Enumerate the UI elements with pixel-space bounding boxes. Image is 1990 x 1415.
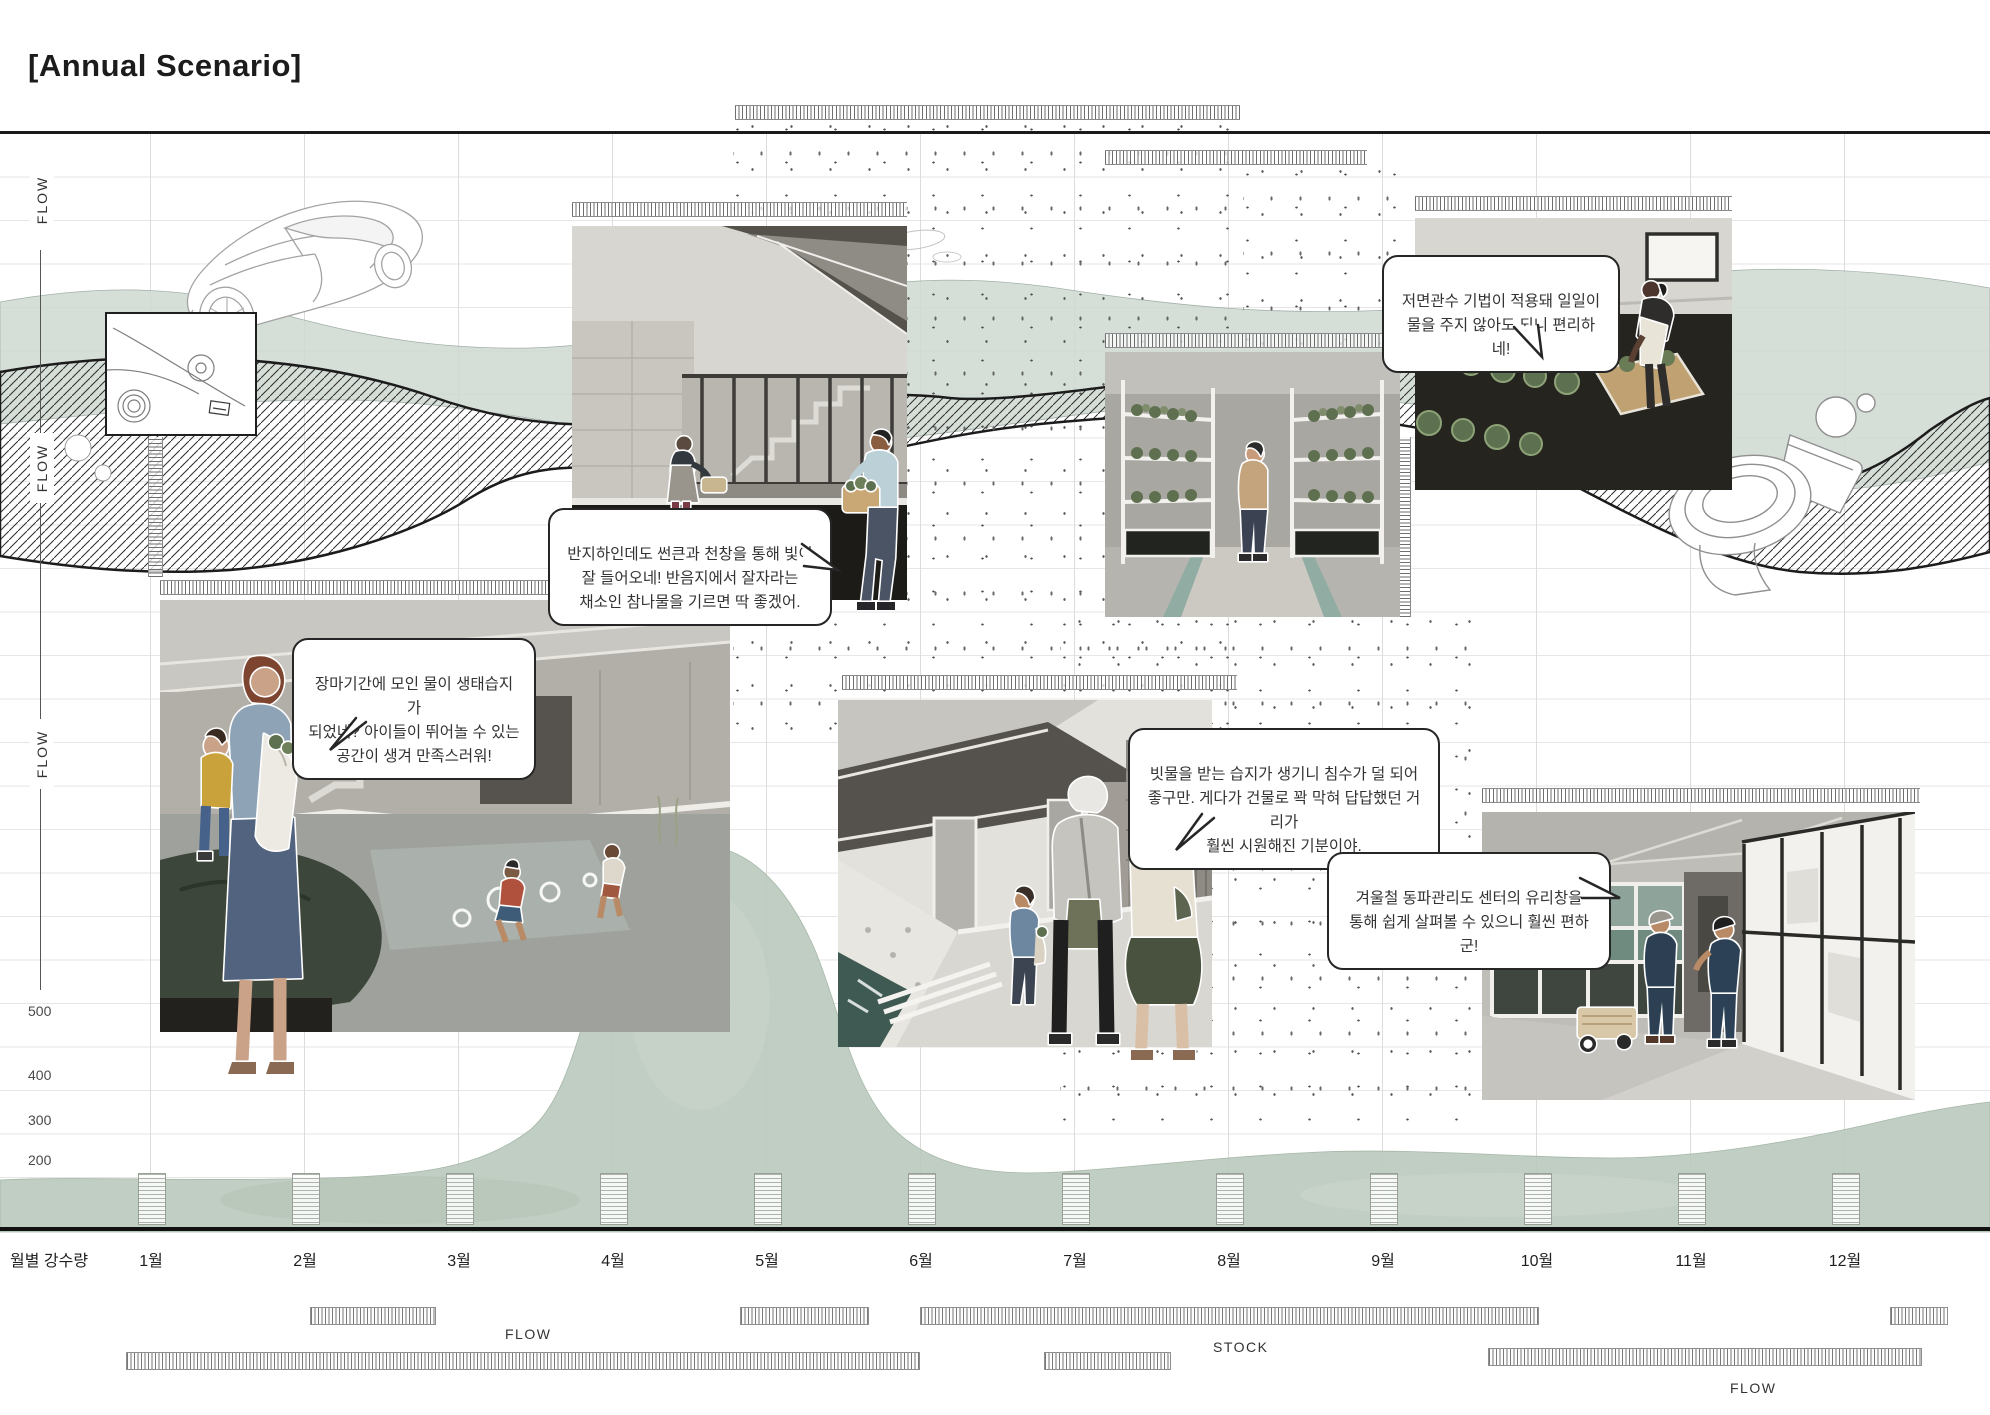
drain-bar-jan [138,1173,166,1225]
ruler-strip-upper2 [1105,150,1367,165]
timeline-baseline [0,1227,1990,1231]
flow-label-vertical-1: FLOW [30,165,54,235]
flow-label-vertical-2: FLOW [30,433,54,503]
month-label-1: 1월 [116,1247,186,1271]
ytick-300: 300 [28,1112,68,1128]
stock-label: STOCK [1213,1339,1268,1355]
timeline-bar-row1-a [310,1307,436,1325]
month-label-11: 11월 [1656,1247,1726,1271]
ruler-strip-panel5 [842,675,1237,690]
ytick-400: 400 [28,1067,68,1083]
timeline-bar-row1-c [920,1307,1539,1325]
timeline-bar-row2-a [126,1352,920,1370]
drain-bar-dec [1832,1173,1860,1225]
flow-label-bottom-left: FLOW [505,1326,551,1342]
drain-bar-aug [1216,1173,1244,1225]
speech-bubble-wetland-play: 장마기간에 모인 물이 생태습지가 되었네? 아이들이 뛰어놀 수 있는 공간이… [292,638,536,780]
speech-tail-winter-center [1576,872,1630,912]
panel-aquaponics [1105,352,1400,617]
drain-bar-jul [1062,1173,1090,1225]
page-title: [Annual Scenario] [28,48,302,84]
ruler-strip-vert-left [148,437,163,577]
ytick-500: 500 [28,1003,68,1019]
drain-bar-oct [1524,1173,1552,1225]
month-label-7: 7월 [1040,1247,1110,1271]
rainfall-axis-label: 월별 강수량 [10,1247,88,1271]
month-label-4: 4월 [578,1247,648,1271]
speech-tail-irrigation [1508,323,1568,363]
month-label-6: 6월 [886,1247,956,1271]
month-label-10: 10월 [1502,1247,1572,1271]
timeline-bar-row1-d [1890,1307,1948,1325]
speech-tail-street-swale [1166,812,1226,856]
speech-bubble-irrigation: 저면관수 기법이 적용돼 일일이 물을 주지 않아도 되니 편리하네! [1382,255,1620,373]
figure-man-basket [843,428,917,614]
month-label-9: 9월 [1348,1247,1418,1271]
drain-bar-sep [1370,1173,1398,1225]
month-label-12: 12월 [1810,1247,1880,1271]
drain-bar-apr [600,1173,628,1225]
left-axis-line [40,250,41,990]
drain-bar-jun [908,1173,936,1225]
inset-sketch-panel [105,312,257,436]
drain-bar-mar [446,1173,474,1225]
timeline-bar-row2-c [1488,1348,1922,1366]
speech-tail-wetland-play [322,716,382,756]
timeline-bar-row1-b [740,1307,869,1325]
speech-bubble-winter-center: 겨울철 동파관리도 센터의 유리창을 통해 쉽게 살펴볼 수 있으니 훨씬 편하… [1327,852,1611,970]
speech-bubble-text: 겨울철 동파관리도 센터의 유리창을 통해 쉽게 살펴볼 수 있으니 훨씬 편하… [1349,890,1589,955]
flow-label-vertical-3: FLOW [30,719,54,789]
timeline-bar-row2-b [1044,1352,1171,1370]
ytick-200: 200 [28,1152,68,1168]
speech-tail-sunken-light [798,538,848,582]
speech-bubble-text: 저면관수 기법이 적용돼 일일이 물을 주지 않아도 되니 편리하네! [1402,293,1600,358]
month-label-5: 5월 [732,1247,802,1271]
ruler-strip-panel3 [1415,196,1732,211]
top-rule [0,131,1990,134]
speech-bubble-text: 반지하인데도 썬큰과 천창을 통해 빛이 잘 들어오네! 반음지에서 잘자라는 … [567,546,812,611]
ruler-strip-top [735,105,1240,120]
month-label-3: 3월 [424,1247,494,1271]
month-label-8: 8월 [1194,1247,1264,1271]
drain-bar-may [754,1173,782,1225]
drain-bar-feb [292,1173,320,1225]
ruler-strip-panel2 [1105,333,1400,348]
drain-bar-nov [1678,1173,1706,1225]
ruler-strip-panel6 [1482,788,1920,803]
flow-label-bottom-right: FLOW [1730,1380,1776,1396]
annual-scenario-board: 저면관수 기법이 적용돼 일일이 물을 주지 않아도 되니 편리하네! 반지하인… [0,0,1990,1415]
month-label-2: 2월 [270,1247,340,1271]
speech-bubble-sunken-light: 반지하인데도 썬큰과 천창을 통해 빛이 잘 들어오네! 반음지에서 잘자라는 … [548,508,832,626]
ruler-strip-panel1 [572,202,907,217]
